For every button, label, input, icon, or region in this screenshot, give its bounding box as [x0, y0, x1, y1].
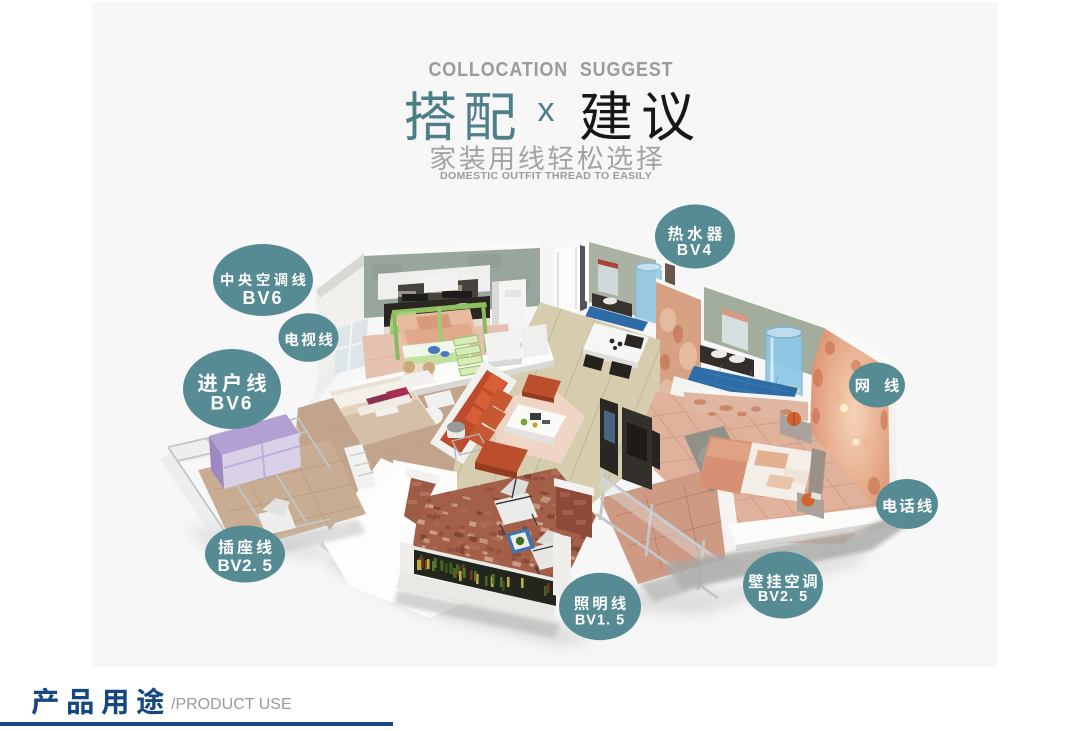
svg-text:BV4: BV4 [677, 242, 713, 259]
svg-text:x: x [538, 91, 555, 129]
svg-text:/PRODUCT USE: /PRODUCT USE [171, 696, 292, 713]
svg-text:BV2. 5: BV2. 5 [758, 589, 808, 605]
svg-text:BV6: BV6 [242, 288, 283, 308]
svg-text:DOMESTIC OUTFIT THREAD TO EASI: DOMESTIC OUTFIT THREAD TO EASILY [440, 170, 652, 182]
svg-text:BV6: BV6 [211, 394, 254, 415]
svg-text:COLLOCATION SUGGEST: COLLOCATION SUGGEST [429, 59, 674, 81]
svg-text:BV2. 5: BV2. 5 [218, 556, 273, 575]
svg-text:BV1. 5: BV1. 5 [575, 613, 625, 629]
